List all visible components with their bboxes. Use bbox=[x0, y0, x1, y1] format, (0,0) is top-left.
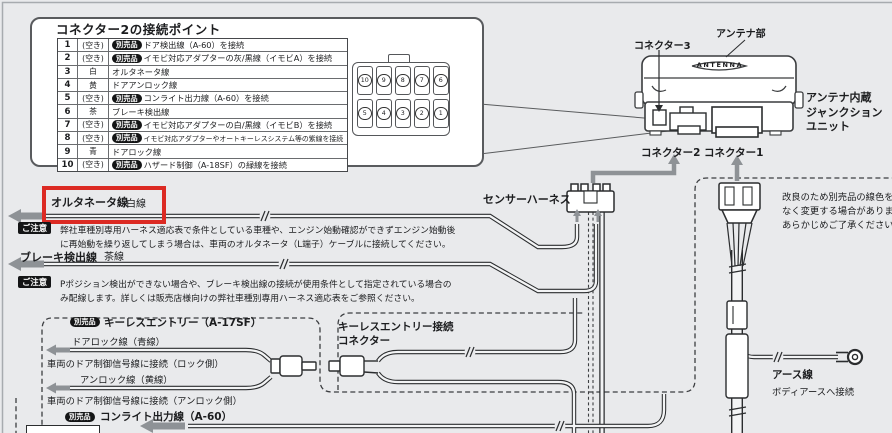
connector3-label: コネクター3 bbox=[634, 37, 691, 52]
optional-part-badge: 別売品 bbox=[112, 120, 142, 130]
connector2-label: コネクター2 bbox=[641, 145, 700, 160]
unlock-line-label: アンロック線（黄線） bbox=[80, 372, 173, 386]
pin-8: 8 bbox=[396, 74, 410, 88]
sensor-harness-connector bbox=[567, 184, 614, 212]
caution1-line1: 弊社車種別専用ハーネス適応表で条件としている車種や、エンジン始動確認ができずエン… bbox=[60, 223, 455, 236]
caution2-line1: Pポジション検出ができない場合や、ブレーキ検出線の接続が使用条件として指定されて… bbox=[60, 277, 452, 290]
table-row: 6茶ブレーキ検出線 bbox=[58, 104, 347, 117]
unit-connector3 bbox=[653, 110, 666, 125]
keyless-entry-title: キーレスエントリー（A-17SF） bbox=[104, 315, 261, 330]
doorlock-arrow bbox=[46, 345, 70, 356]
antenna-logo-text: ANTENNA bbox=[694, 61, 746, 69]
brake-line-label: ブレーキ検出線 bbox=[20, 249, 97, 265]
connector2-table-title: コネクター2の接続ポイント bbox=[56, 19, 221, 38]
pin-connector-diagram: 10 9 8 7 6 5 4 3 2 1 bbox=[352, 62, 450, 136]
conlight-label: コンライト出力線（A-60） bbox=[100, 409, 232, 424]
caution-badge: ご注意 bbox=[18, 276, 51, 288]
color-change-note: 改良のため別売品の線色を予告 なく変更する場合があります。 あらかじめご了承くだ… bbox=[782, 191, 892, 232]
doorlock-line-label: ドアロック線（青線） bbox=[72, 334, 165, 348]
pin-5: 5 bbox=[358, 107, 372, 121]
optional-part-badge: 別売品 bbox=[112, 133, 142, 143]
unit-connector1 bbox=[712, 107, 762, 137]
highlight-box bbox=[42, 186, 166, 224]
connector1-label: コネクター1 bbox=[704, 145, 763, 160]
table-row: 2(空き)別売品イモビ対応アダプターの灰/黒線（イモビA）を接続 bbox=[58, 51, 347, 64]
caution-badge: ご注意 bbox=[18, 222, 51, 234]
caution2-line2: み配線します。詳しくは販売店様向けの弊社車種別専用ハーネス適応表をご参照ください… bbox=[60, 291, 420, 304]
pin-3: 3 bbox=[396, 107, 410, 121]
optional-part-badge: 別売品 bbox=[112, 40, 142, 50]
sensor-harness-label: センサーハーネス bbox=[483, 191, 571, 207]
doorlock-connect-label: 車両のドア制御信号線に接続（ロック側） bbox=[47, 356, 224, 370]
optional-part-badge: 別売品 bbox=[112, 54, 142, 64]
table-row: 7(空き)別売品イモビ対応アダプターの白/黒線（イモビB）を接続 bbox=[58, 118, 347, 131]
pin-1: 1 bbox=[434, 107, 448, 121]
antenna-part-label: アンテナ部 bbox=[716, 25, 766, 40]
table-row: 3白オルタネータ線 bbox=[58, 65, 347, 78]
antenna-part-leader bbox=[726, 40, 745, 57]
optional-part-badge: 別売品 bbox=[65, 412, 95, 422]
keyless-plug-left bbox=[271, 356, 316, 376]
wiring-diagram-page: コネクター2の接続ポイント 1(空き)別売品ドア検出線（A-60）を接続 2(空… bbox=[0, 0, 892, 433]
ring-terminal bbox=[836, 350, 862, 364]
table-row: 8(空き)別売品イモビ対応アダプターやオートキーレスシステム等の紫線を接続 bbox=[58, 131, 347, 144]
unit-name-label: アンテナ内蔵 ジャンクション ユニット bbox=[806, 91, 882, 135]
alternator-arrow bbox=[8, 209, 44, 223]
pin-7: 7 bbox=[415, 74, 429, 88]
connector2-table: 1(空き)別売品ドア検出線（A-60）を接続 2(空き)別売品イモビ対応アダプタ… bbox=[57, 38, 348, 172]
pin-4: 4 bbox=[377, 107, 391, 121]
leader-line-bottom bbox=[480, 131, 668, 154]
table-row: 5(空き)別売品コンライト出力線（A-60）を接続 bbox=[58, 91, 347, 104]
partial-component-box bbox=[26, 425, 100, 433]
keyless-connector-label: キーレスエントリー接続 コネクター bbox=[338, 320, 454, 348]
table-row: 10(空き)別売品ハザード制御（A-18SF）の緑線を接続 bbox=[58, 158, 347, 171]
optional-part-badge: 別売品 bbox=[70, 317, 100, 327]
ground-wire bbox=[741, 344, 838, 357]
harness-dashed-wires bbox=[589, 212, 594, 433]
brake-color-label: 茶線 bbox=[104, 248, 124, 263]
pin-6: 6 bbox=[434, 74, 448, 88]
optional-part-badge: 別売品 bbox=[112, 94, 142, 104]
ground-line-label: アース線 bbox=[772, 367, 813, 382]
unlock-connect-label: 車両のドア制御信号線に接続（アンロック側） bbox=[47, 393, 242, 407]
ground-connect-label: ボディアースへ接続 bbox=[772, 384, 854, 398]
table-row: 1(空き)別売品ドア検出線（A-60）を接続 bbox=[58, 39, 347, 51]
pin-10: 10 bbox=[358, 74, 372, 88]
pin-row-top: 10 9 8 7 6 bbox=[357, 66, 450, 95]
unlock-arrow bbox=[46, 383, 70, 394]
pin-9: 9 bbox=[377, 74, 391, 88]
pin-2: 2 bbox=[415, 107, 429, 121]
pin-row-bottom: 5 4 3 2 1 bbox=[357, 99, 450, 128]
table-row: 4黄ドアアンロック線 bbox=[58, 78, 347, 91]
keyless-connection-plug bbox=[329, 356, 378, 376]
table-row: 9青ドアロック線 bbox=[58, 144, 347, 157]
antenna-junction-unit bbox=[635, 40, 803, 137]
optional-part-badge: 別売品 bbox=[112, 160, 142, 170]
